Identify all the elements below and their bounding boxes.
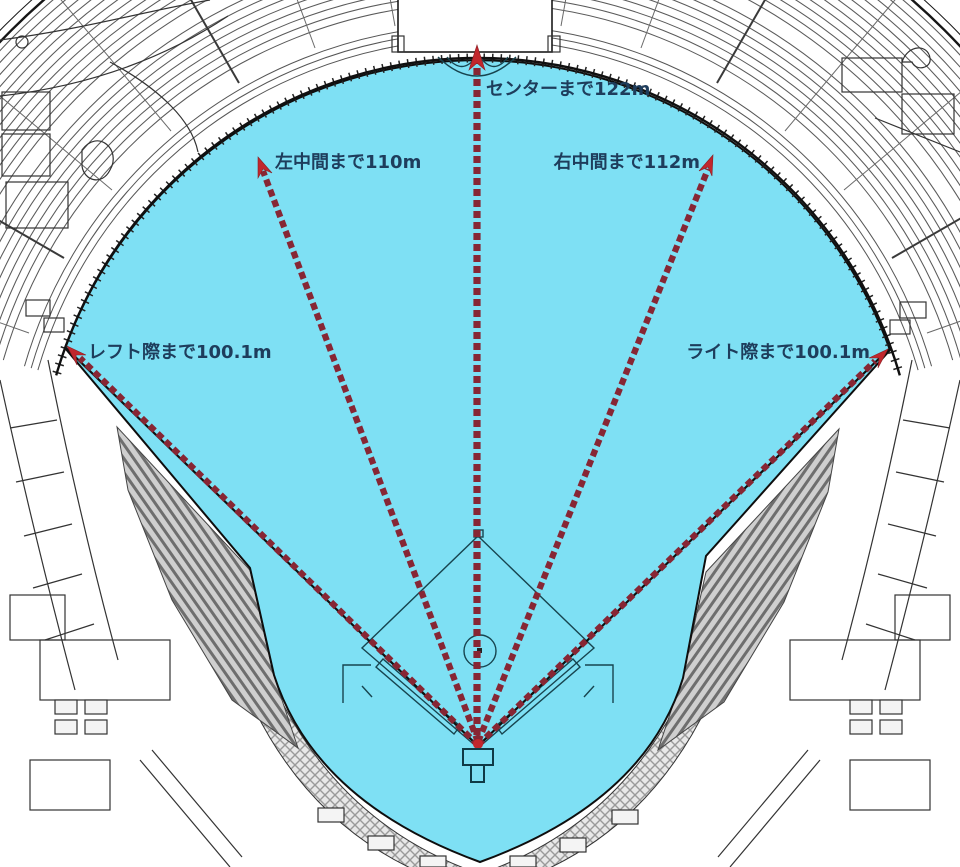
scoreboard xyxy=(392,0,560,52)
label-right-line-distance: ライト際まで100.1m xyxy=(686,341,870,363)
arrow-origin-point xyxy=(473,739,483,749)
label-right-center-distance: 右中間まで112m xyxy=(554,151,700,173)
stadium-plan-svg: センターまで122m 左中間まで110m 右中間まで112m レフト際まで100… xyxy=(0,0,960,867)
label-left-center-distance: 左中間まで110m xyxy=(275,151,421,173)
stadium-plan: センターまで122m 左中間まで110m 右中間まで112m レフト際まで100… xyxy=(0,0,960,867)
label-left-line-distance: レフト際まで100.1m xyxy=(88,341,272,363)
label-center-distance: センターまで122m xyxy=(486,79,650,100)
